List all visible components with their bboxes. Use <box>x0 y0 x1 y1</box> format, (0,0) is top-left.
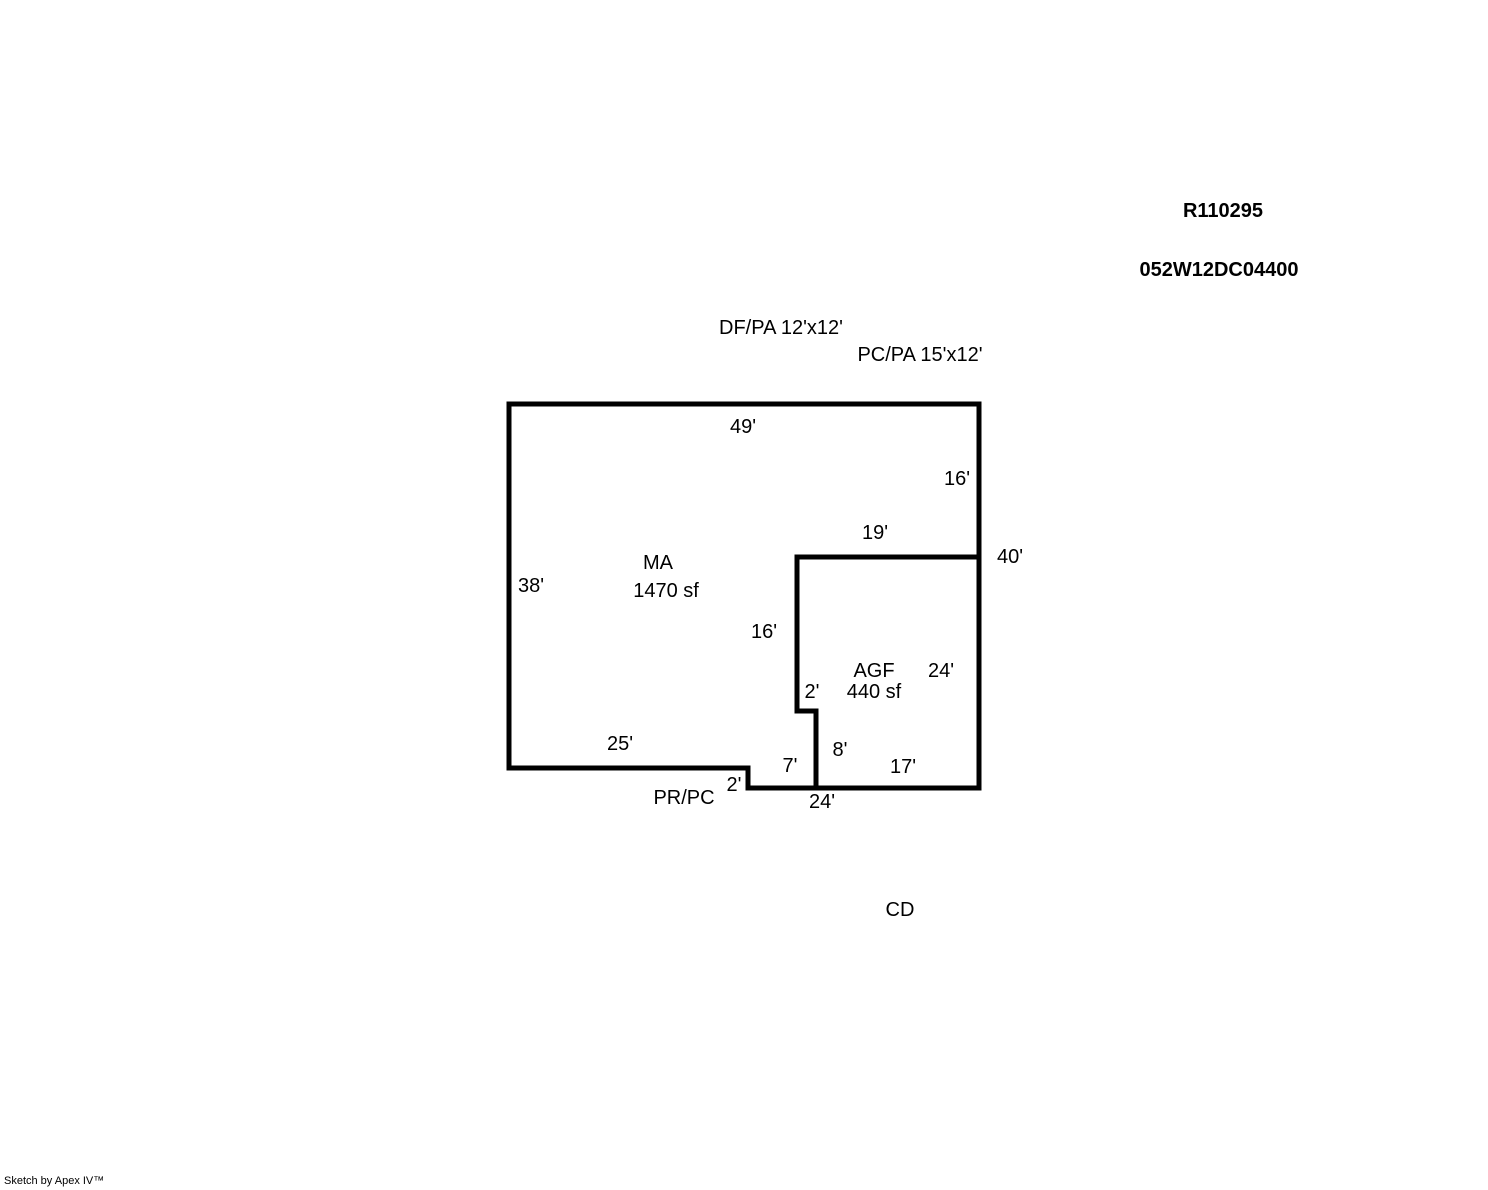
df-pa-annotation: DF/PA 12'x12' <box>719 318 843 338</box>
cd-annotation: CD <box>886 900 915 920</box>
ma-code: MA <box>643 553 673 573</box>
sketch-credit: Sketch by Apex IV™ <box>4 1176 104 1187</box>
dim-step-down-2: 2' <box>727 775 742 795</box>
dim-agf-bottom-17: 17' <box>890 757 916 777</box>
dim-wall-8: 8' <box>833 740 848 760</box>
dim-right-upper-16: 16' <box>944 469 970 489</box>
sketch-page: R110295 052W12DC04400 DF/PA 12'x12'PC/PA… <box>0 0 1488 1190</box>
dim-agf-step-2: 2' <box>805 682 820 702</box>
dim-bottom-total-24: 24' <box>809 792 835 812</box>
pc-pa-annotation: PC/PA 15'x12' <box>857 345 982 365</box>
floor-plan-sketch <box>0 0 1488 1190</box>
agf-code: AGF <box>853 661 894 681</box>
dim-right-total-40: 40' <box>997 547 1023 567</box>
ma-size: 1470 sf <box>633 581 699 601</box>
dim-ma-bottom-25: 25' <box>607 734 633 754</box>
agf-size: 440 sf <box>847 682 901 702</box>
dim-ma-left-38: 38' <box>518 576 544 596</box>
pr-pc-annotation: PR/PC <box>653 788 714 808</box>
dim-agf-right-24: 24' <box>928 661 954 681</box>
dim-agf-top-19: 19' <box>862 523 888 543</box>
dim-bottom-7: 7' <box>783 756 798 776</box>
dim-ma-top-49: 49' <box>730 417 756 437</box>
dim-agf-left-16: 16' <box>751 622 777 642</box>
main-outline <box>509 404 979 788</box>
